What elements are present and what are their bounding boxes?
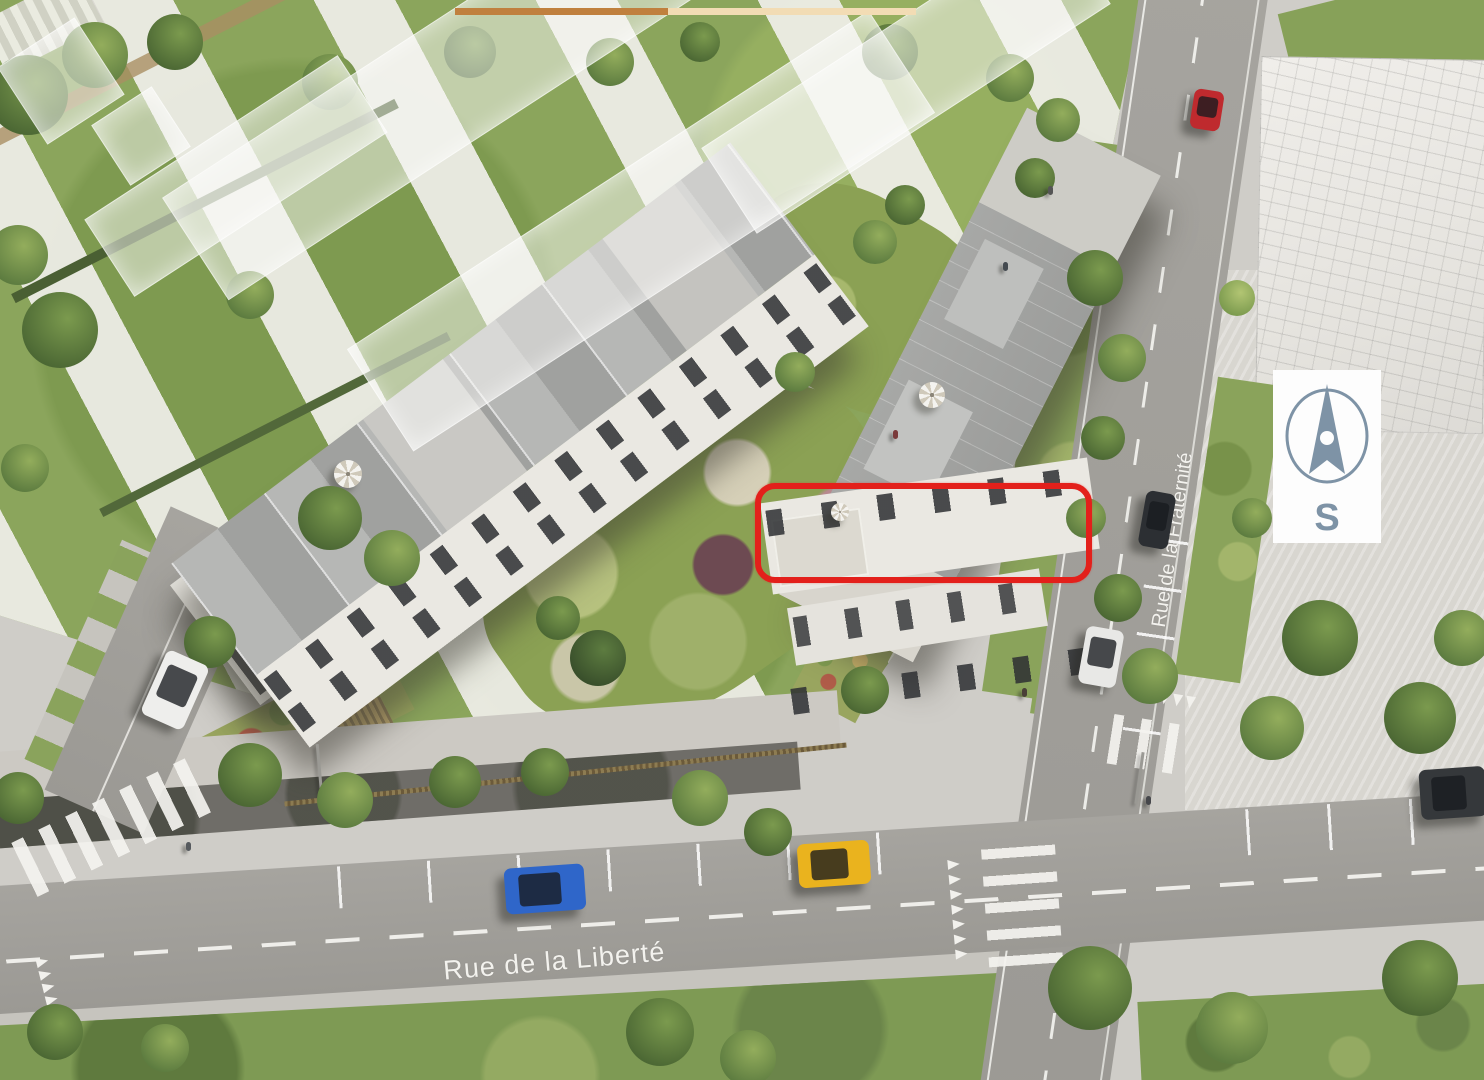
tree xyxy=(672,770,728,826)
give-way-triangle xyxy=(42,981,56,994)
progress-bar-segment-light xyxy=(668,8,916,15)
roof-monitor xyxy=(944,239,1044,349)
give-way-triangle xyxy=(953,919,966,930)
give-way-triangle xyxy=(951,904,964,915)
tree xyxy=(1240,696,1304,760)
dark-suv xyxy=(1418,766,1484,820)
car-windows xyxy=(1196,96,1219,119)
tree xyxy=(141,1024,189,1072)
tree xyxy=(27,1004,83,1060)
pedestrian xyxy=(1146,796,1151,805)
tree xyxy=(218,743,282,807)
tree xyxy=(317,772,373,828)
give-way-triangle xyxy=(1171,694,1183,707)
yellow-car xyxy=(797,840,872,889)
tree xyxy=(1098,334,1146,382)
tree xyxy=(429,756,481,808)
apartment-highlight-box xyxy=(755,483,1092,583)
tree xyxy=(1196,992,1268,1064)
tree xyxy=(22,292,98,368)
tree xyxy=(570,630,626,686)
tree xyxy=(744,808,792,856)
give-way-triangle xyxy=(950,889,963,900)
tree xyxy=(841,666,889,714)
tree xyxy=(521,748,569,796)
pedestrian xyxy=(1003,262,1008,271)
car-windows xyxy=(518,872,562,906)
car-windows xyxy=(1145,501,1170,532)
pedestrian xyxy=(1022,688,1027,697)
tree xyxy=(853,220,897,264)
tree xyxy=(1122,648,1178,704)
tree xyxy=(1232,498,1272,538)
tree xyxy=(147,14,203,70)
aerial-render-canvas: Rue de la Liberté Rue de la Fraternité a… xyxy=(0,0,1484,1080)
compass-south-label: S xyxy=(1273,499,1381,537)
car-windows xyxy=(156,663,199,708)
tree xyxy=(720,1030,776,1080)
tree xyxy=(1067,250,1123,306)
red-car xyxy=(1189,88,1225,132)
tree xyxy=(885,185,925,225)
tree xyxy=(1384,682,1456,754)
tree xyxy=(1036,98,1080,142)
tree xyxy=(1081,416,1125,460)
pedestrian xyxy=(1048,186,1053,195)
give-way-triangle xyxy=(949,874,962,885)
pedestrian xyxy=(186,842,191,851)
car-windows xyxy=(1431,775,1468,811)
tree xyxy=(1219,280,1255,316)
tree xyxy=(536,596,580,640)
parasol xyxy=(919,382,945,408)
give-way-triangle xyxy=(955,949,968,960)
give-way-triangle xyxy=(38,968,52,981)
tree xyxy=(626,998,694,1066)
tree xyxy=(1048,946,1132,1030)
tree xyxy=(298,486,362,550)
compass-widget: S xyxy=(1273,370,1381,543)
tree xyxy=(364,530,420,586)
car-windows xyxy=(810,848,849,880)
tree xyxy=(1282,600,1358,676)
compass-needle-icon xyxy=(1273,370,1381,500)
give-way-triangle xyxy=(1184,696,1196,709)
parasol xyxy=(334,460,362,488)
tree xyxy=(1434,610,1484,666)
car-windows xyxy=(1086,636,1116,669)
tree xyxy=(1,444,49,492)
tree xyxy=(680,22,720,62)
give-way-triangle xyxy=(35,956,49,969)
tree xyxy=(1382,940,1458,1016)
tree xyxy=(775,352,815,392)
give-way-triangle xyxy=(954,934,967,945)
pedestrian xyxy=(893,430,898,439)
progress-bar-segment-dark xyxy=(455,8,668,15)
tree xyxy=(1094,574,1142,622)
blue-car xyxy=(503,863,586,914)
give-way-triangle xyxy=(947,859,960,870)
